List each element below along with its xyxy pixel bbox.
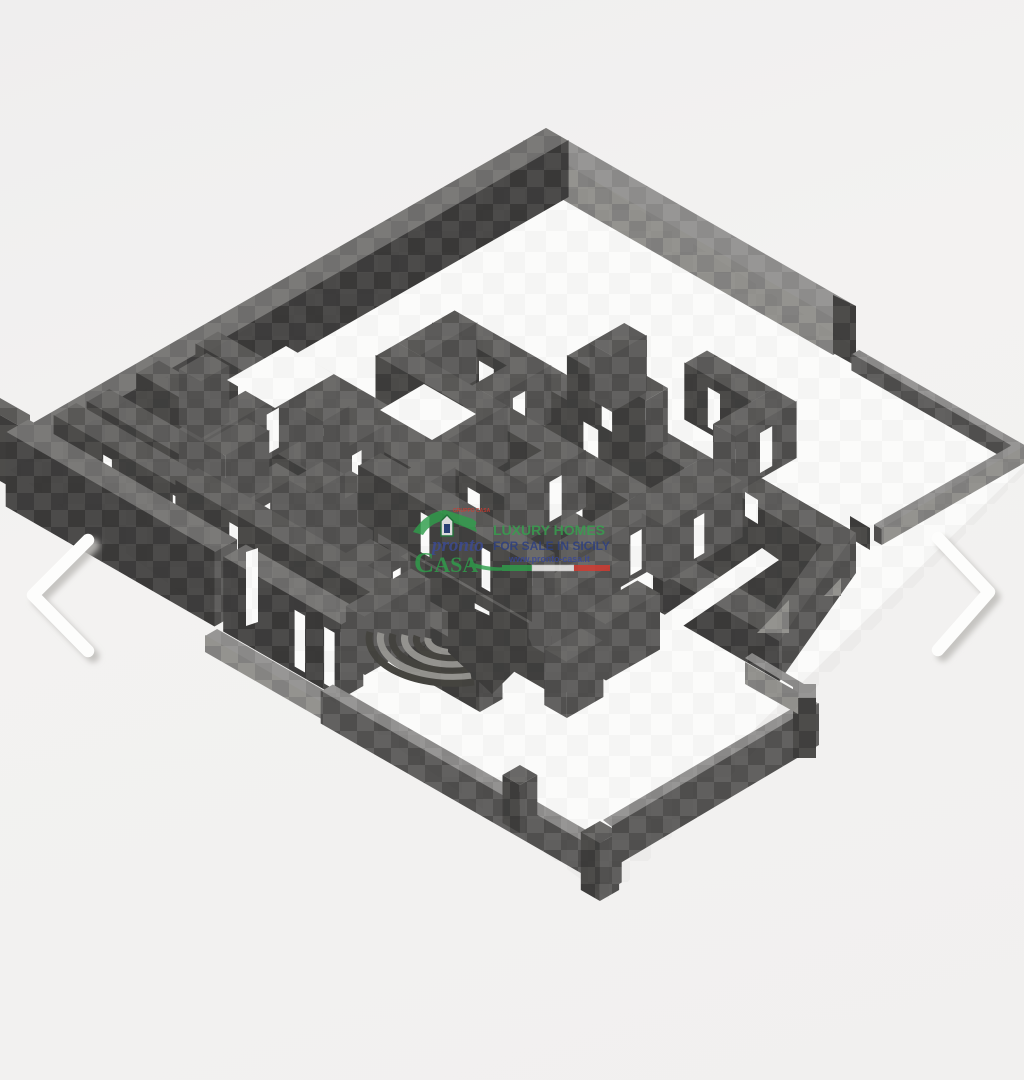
svg-text:GRUPPO CASA: GRUPPO CASA xyxy=(453,508,491,514)
svg-text:LUXURY HOMES: LUXURY HOMES xyxy=(493,522,605,538)
svg-text:FOR SALE IN SICILY: FOR SALE IN SICILY xyxy=(493,539,610,553)
svg-text:CASA: CASA xyxy=(414,548,478,579)
svg-text:www.pronto-casa.it: www.pronto-casa.it xyxy=(508,554,590,564)
